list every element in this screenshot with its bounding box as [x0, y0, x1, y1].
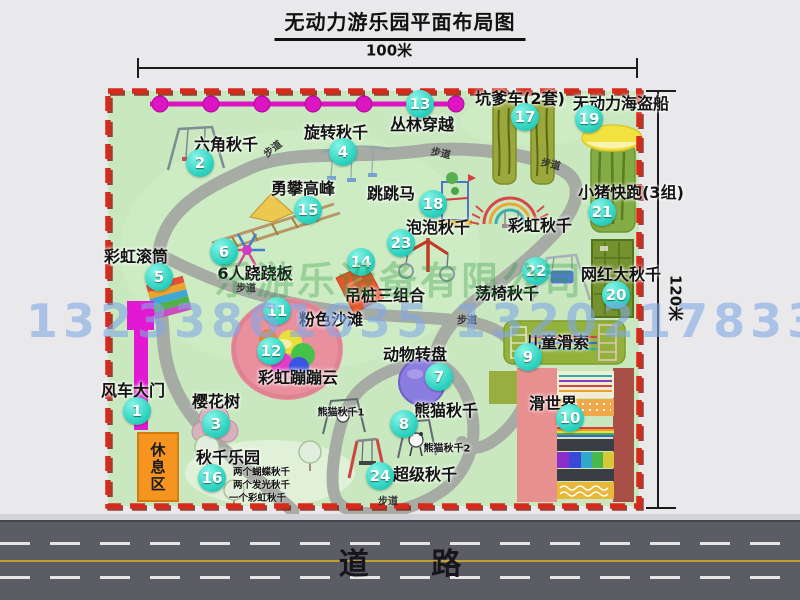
- road: 道 路: [0, 514, 800, 600]
- path-label: 步道: [539, 153, 562, 172]
- attraction-10-marker: 10: [556, 404, 584, 432]
- attraction-14-label: 吊桩三组合: [345, 282, 425, 306]
- path-label: 步道: [260, 136, 285, 160]
- path-label: 步道: [430, 143, 453, 162]
- attraction-7-marker: 7: [425, 363, 453, 391]
- attraction-21-marker: 21: [588, 198, 616, 226]
- attraction-13-marker: 13: [406, 90, 434, 118]
- path-label: 步道: [457, 312, 477, 327]
- attraction-2-marker: 2: [186, 149, 214, 177]
- attraction-12-label: 彩虹蹦蹦云: [258, 364, 338, 388]
- park-layout-map: 无动力游乐园平面布局图 100米 120米 休息区 风车大门1六角秋千2樱花树3…: [0, 0, 800, 600]
- attraction-23-marker: 23: [387, 229, 415, 257]
- attraction-6-marker: 6: [210, 238, 238, 266]
- attraction-8-sublabel: 熊猫秋千2: [424, 440, 471, 455]
- attraction-23-label: 泡泡秋千: [406, 214, 470, 238]
- attraction-16-note: 一个彩虹秋千: [229, 490, 286, 504]
- labels-layer: 风车大门1六角秋千2樱花树3旋转秋千4彩虹滚筒56人跷跷板6动物转盘7熊猫秋千8…: [0, 0, 800, 600]
- attraction-24-marker: 24: [366, 462, 394, 490]
- attraction-20-marker: 20: [602, 281, 630, 309]
- attraction-11-marker: 11: [263, 297, 291, 325]
- attraction-1-marker: 1: [123, 397, 151, 425]
- attraction-22-marker: 22: [522, 257, 550, 285]
- attraction-11-label: 粉色沙滩: [299, 306, 363, 330]
- attraction-9-marker: 9: [514, 343, 542, 371]
- attraction-18-marker: 18: [419, 190, 447, 218]
- road-label: 道 路: [339, 539, 461, 583]
- attraction-12-marker: 12: [257, 337, 285, 365]
- attraction-16-note: 两个发光秋千: [233, 477, 290, 491]
- attraction-5-marker: 5: [145, 263, 173, 291]
- attraction-15-marker: 15: [294, 196, 322, 224]
- attraction-16-marker: 16: [198, 464, 226, 492]
- attraction-18-label: 跳跳马: [367, 180, 415, 204]
- rainbow-swing-label: 彩虹秋千: [508, 212, 572, 236]
- path-label: 步道: [378, 493, 398, 508]
- attraction-19-marker: 19: [575, 105, 603, 133]
- attraction-16-note: 两个蝴蝶秋千: [233, 464, 290, 478]
- attraction-4-marker: 4: [329, 138, 357, 166]
- attraction-15-label: 勇攀高峰: [271, 175, 335, 199]
- rest-area: 休息区: [137, 432, 179, 502]
- attraction-8-label: 熊猫秋千: [414, 397, 478, 421]
- attraction-7-label: 动物转盘: [383, 341, 447, 365]
- attraction-3-marker: 3: [202, 410, 230, 438]
- road-surface: 道 路: [0, 520, 800, 600]
- attraction-3-label: 樱花树: [192, 388, 240, 412]
- attraction-8-marker: 8: [390, 410, 418, 438]
- attraction-24-label: 超级秋千: [393, 461, 457, 485]
- attraction-17-marker: 17: [511, 103, 539, 131]
- attraction-14-marker: 14: [347, 248, 375, 276]
- rest-area-label: 休息区: [148, 442, 169, 493]
- attraction-8-sublabel: 熊猫秋千1: [318, 404, 365, 419]
